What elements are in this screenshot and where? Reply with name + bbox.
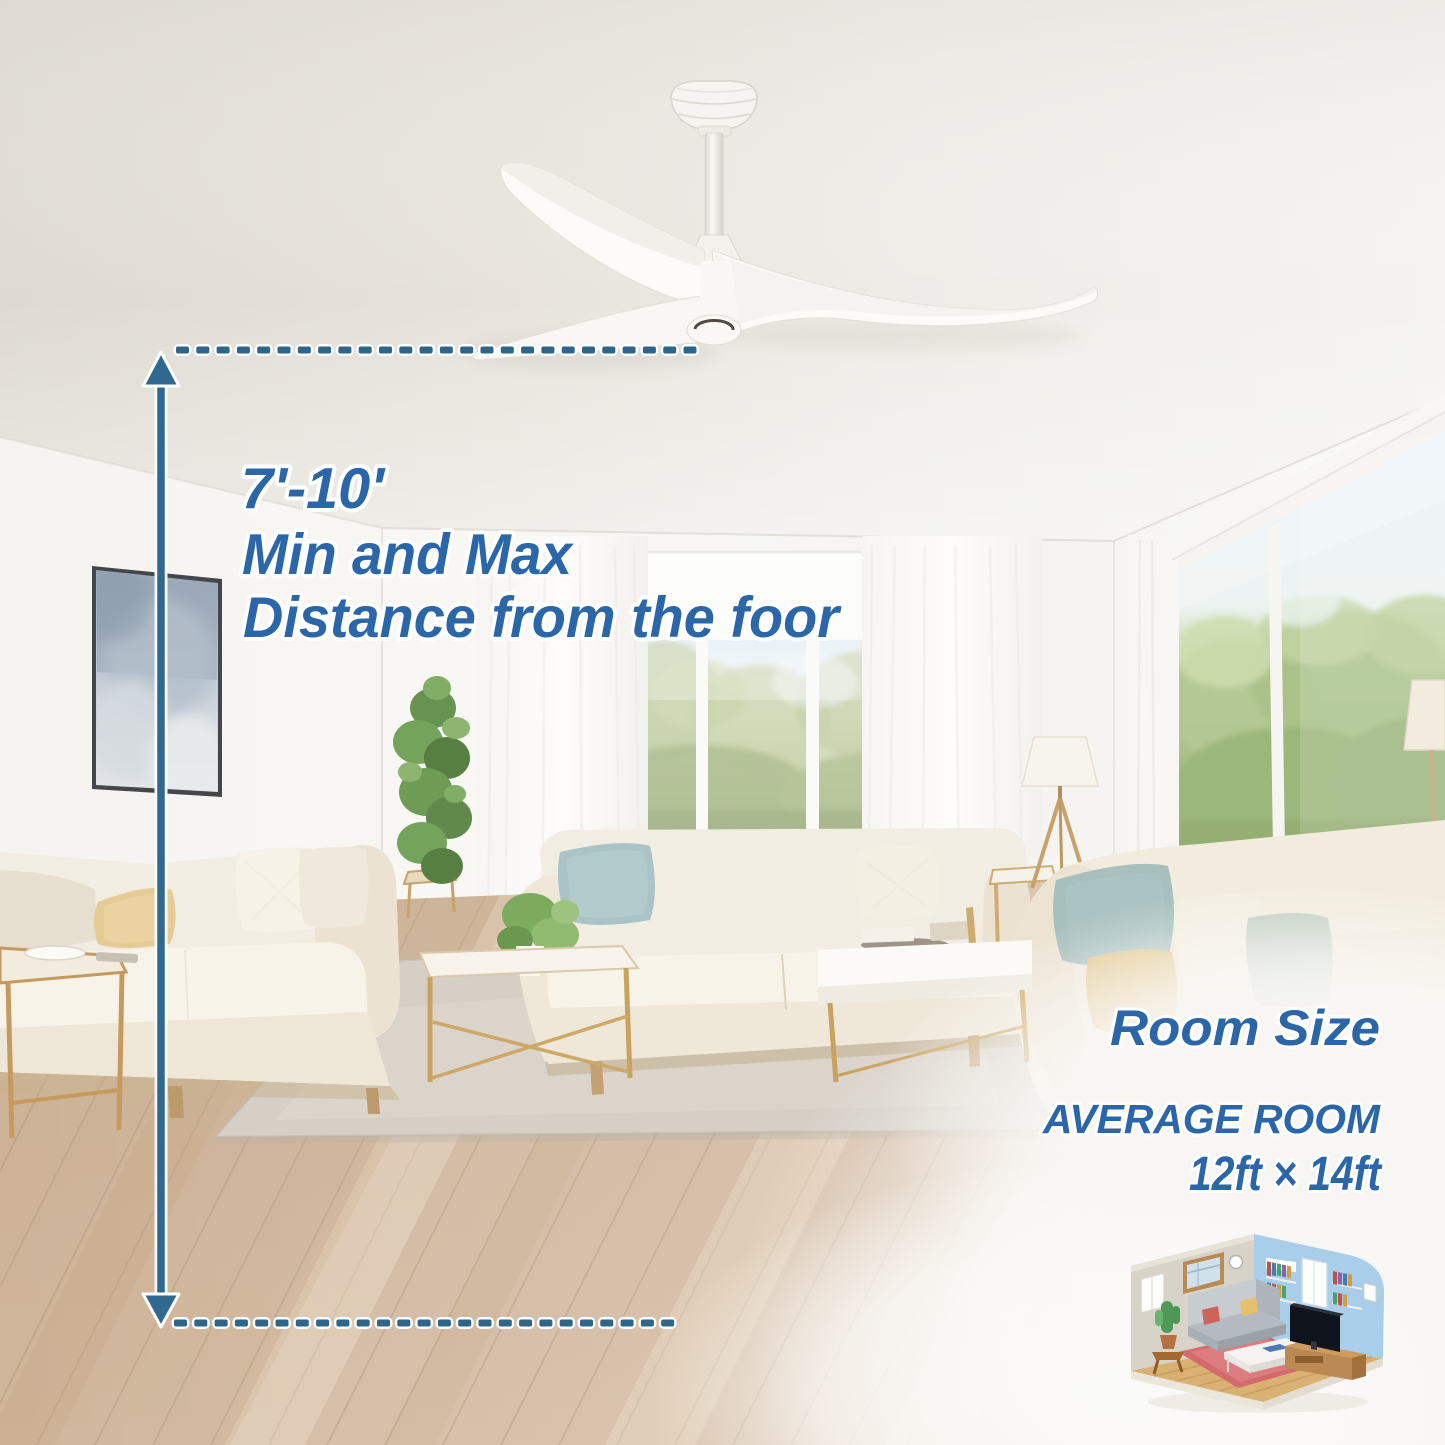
svg-text:Distance from the foor: Distance from the foor [243, 586, 842, 650]
svg-text:12ft × 14ft: 12ft × 14ft [1189, 1148, 1383, 1201]
svg-text:AVERAGE ROOM: AVERAGE ROOM [1042, 1096, 1381, 1142]
svg-text:Room Size: Room Size [1110, 1000, 1380, 1056]
svg-text:Min and Max: Min and Max [242, 523, 574, 587]
svg-text:7'-10': 7'-10' [241, 457, 386, 521]
